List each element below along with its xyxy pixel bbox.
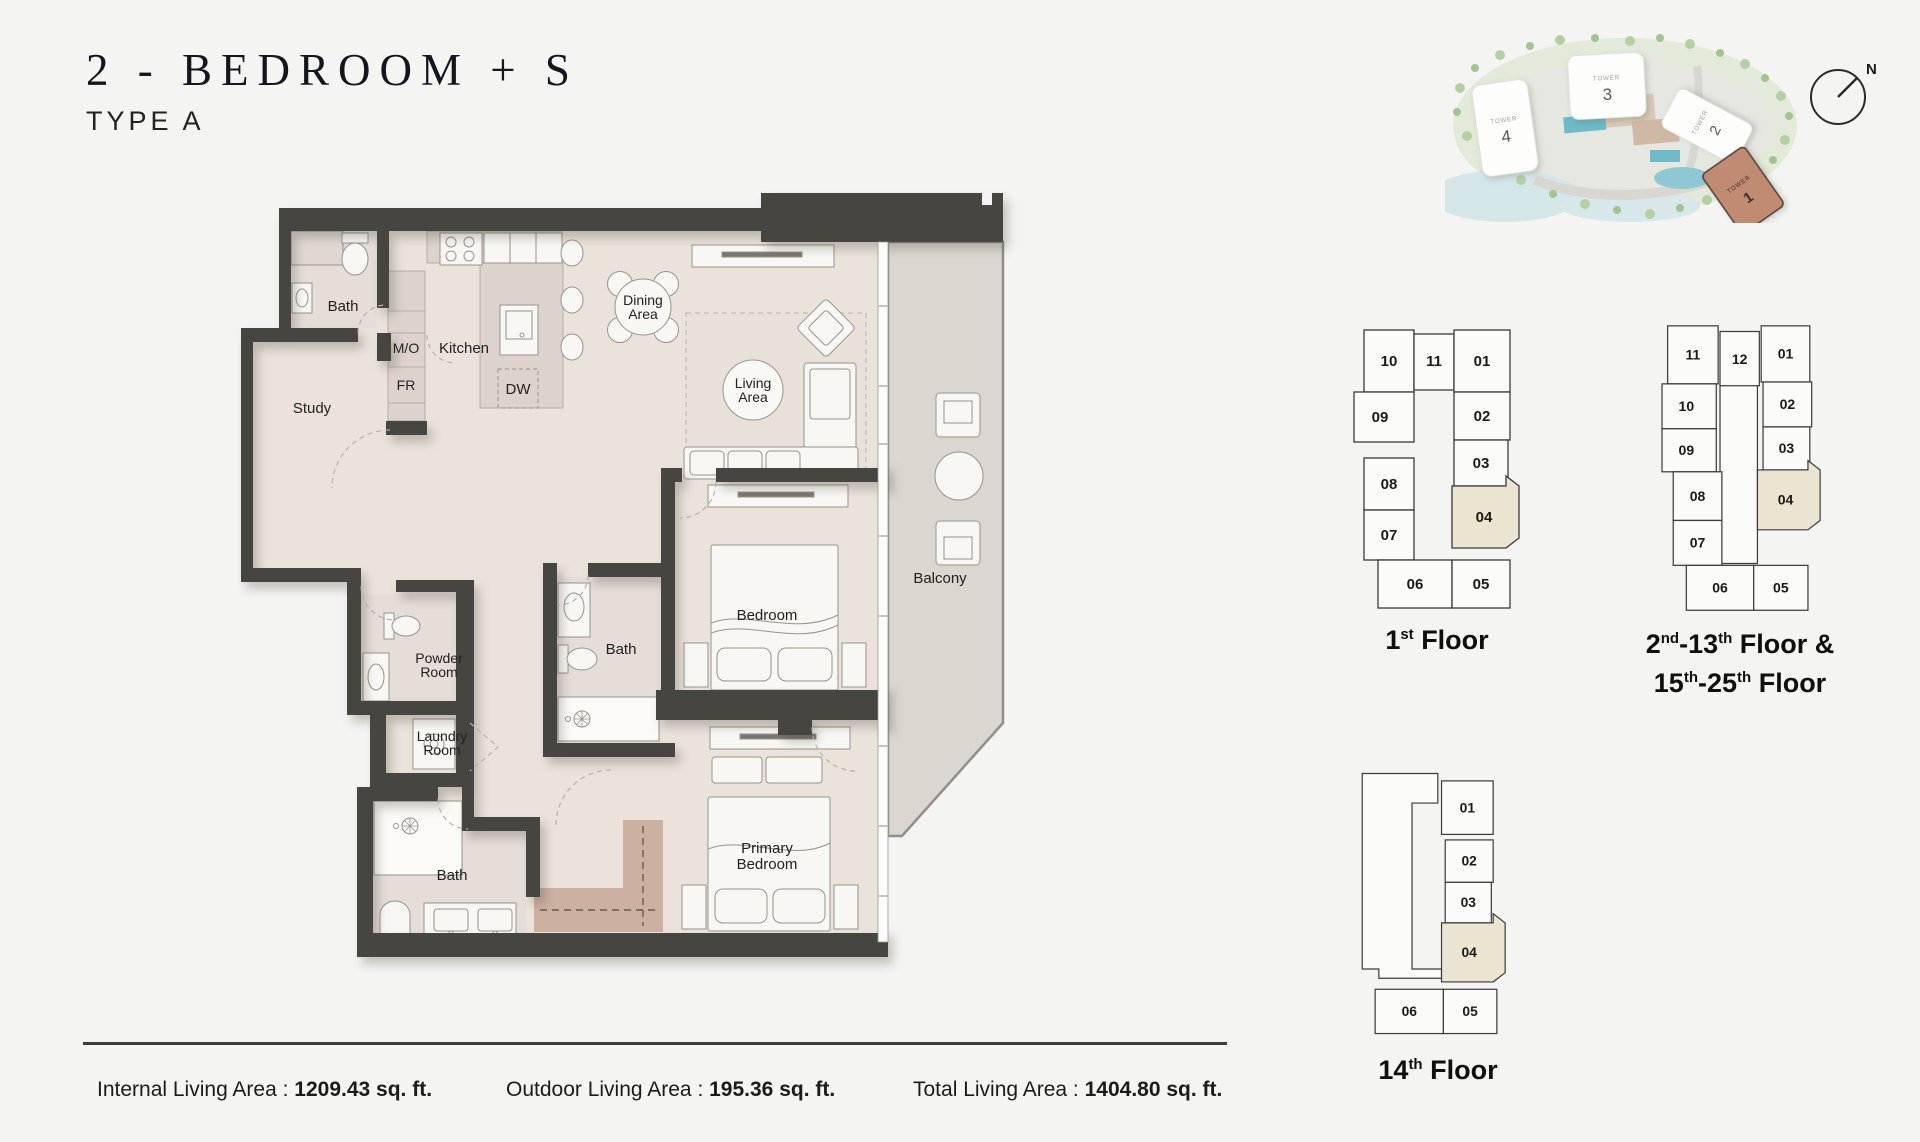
- svg-text:02: 02: [1474, 408, 1491, 425]
- room-label-bedroom: Bedroom: [737, 607, 798, 624]
- svg-text:10: 10: [1381, 353, 1398, 370]
- svg-text:11: 11: [1685, 347, 1700, 363]
- room-label-primary-2: Bedroom: [737, 856, 798, 873]
- svg-text:03: 03: [1779, 440, 1795, 456]
- room-label-balcony: Balcony: [913, 570, 967, 587]
- tower-4: TOWER 4: [1471, 79, 1539, 178]
- caption-fourteenth-floor: 14th Floor: [1348, 1048, 1528, 1087]
- svg-text:02: 02: [1780, 396, 1796, 412]
- svg-text:04: 04: [1476, 509, 1493, 526]
- compass-north-label: N: [1866, 61, 1877, 78]
- svg-text:06: 06: [1712, 579, 1728, 595]
- svg-text:12: 12: [1732, 351, 1748, 367]
- site-map: TOWER 4 TOWER 3 TOWER 2 TOWER 1: [1445, 28, 1800, 223]
- window-wall: [878, 242, 888, 942]
- svg-text:01: 01: [1778, 346, 1794, 362]
- svg-text:08: 08: [1690, 488, 1706, 504]
- svg-text:07: 07: [1690, 535, 1706, 551]
- room-label-dining-2: Area: [628, 306, 658, 322]
- room-label-bath3: Bath: [437, 867, 468, 884]
- stat-outdoor-area: Outdoor Living Area : 195.36 sq. ft.: [506, 1078, 835, 1102]
- caption-first-floor: 1st Floor: [1352, 618, 1522, 657]
- room-label-study: Study: [293, 400, 332, 417]
- svg-text:10: 10: [1679, 398, 1695, 414]
- keyplan-first-floor: 10 11 01 09 02 03 08 04 07 06 05: [1352, 328, 1522, 613]
- stat-internal-area: Internal Living Area : 1209.43 sq. ft.: [97, 1078, 432, 1102]
- page-subtitle: TYPE A: [86, 106, 579, 137]
- core-outline: [1720, 384, 1757, 564]
- core-outline: [1362, 774, 1441, 979]
- divider-rule: [83, 1042, 1227, 1045]
- svg-text:09: 09: [1372, 409, 1389, 426]
- svg-text:03: 03: [1473, 455, 1490, 472]
- floorplan: Bath Study M/O FR Kitchen DW Dining Area…: [238, 185, 1028, 995]
- room-label-bath1: Bath: [328, 298, 359, 315]
- svg-text:09: 09: [1679, 442, 1695, 458]
- stat-total-area: Total Living Area : 1404.80 sq. ft.: [913, 1078, 1222, 1102]
- caption-typical-floor: 2nd-13th Floor & 15th-25th Floor: [1620, 622, 1860, 700]
- svg-text:03: 03: [1461, 894, 1477, 910]
- svg-text:06: 06: [1407, 576, 1424, 593]
- room-label-kitchen: Kitchen: [439, 340, 489, 357]
- room-label-living-2: Area: [738, 389, 768, 405]
- svg-text:05: 05: [1462, 1003, 1478, 1019]
- keyplan-typical-floor: 11 12 01 10 02 09 03 08 04 07 06 05: [1652, 324, 1832, 614]
- svg-text:05: 05: [1773, 579, 1789, 595]
- page-title: 2 - BEDROOM + S: [86, 44, 579, 96]
- svg-text:01: 01: [1460, 799, 1476, 815]
- svg-text:3: 3: [1602, 85, 1612, 104]
- svg-text:04: 04: [1778, 492, 1794, 508]
- room-label-powder-2: Room: [420, 664, 457, 680]
- svg-text:08: 08: [1381, 476, 1398, 493]
- svg-text:06: 06: [1402, 1003, 1418, 1019]
- brochure-page: { "header": { "title": "2 - BEDROOM + S"…: [0, 0, 1920, 1142]
- svg-text:01: 01: [1474, 353, 1491, 370]
- tower-3: TOWER 3: [1567, 52, 1646, 120]
- svg-text:02: 02: [1461, 853, 1477, 869]
- svg-text:04: 04: [1461, 944, 1477, 960]
- svg-text:07: 07: [1381, 527, 1398, 544]
- room-label-dw: DW: [506, 381, 532, 398]
- room-label-mo: M/O: [393, 340, 420, 356]
- keyplan-fourteenth-floor: 01 02 03 04 06 05: [1352, 768, 1520, 1040]
- svg-text:05: 05: [1473, 576, 1490, 593]
- room-label-primary-1: Primary: [741, 840, 793, 857]
- compass-icon: N: [1804, 48, 1896, 140]
- room-label-bath2: Bath: [606, 641, 637, 658]
- svg-text:11: 11: [1426, 353, 1442, 370]
- room-label-fr: FR: [397, 377, 416, 393]
- room-label-laundry-2: Room: [423, 742, 460, 758]
